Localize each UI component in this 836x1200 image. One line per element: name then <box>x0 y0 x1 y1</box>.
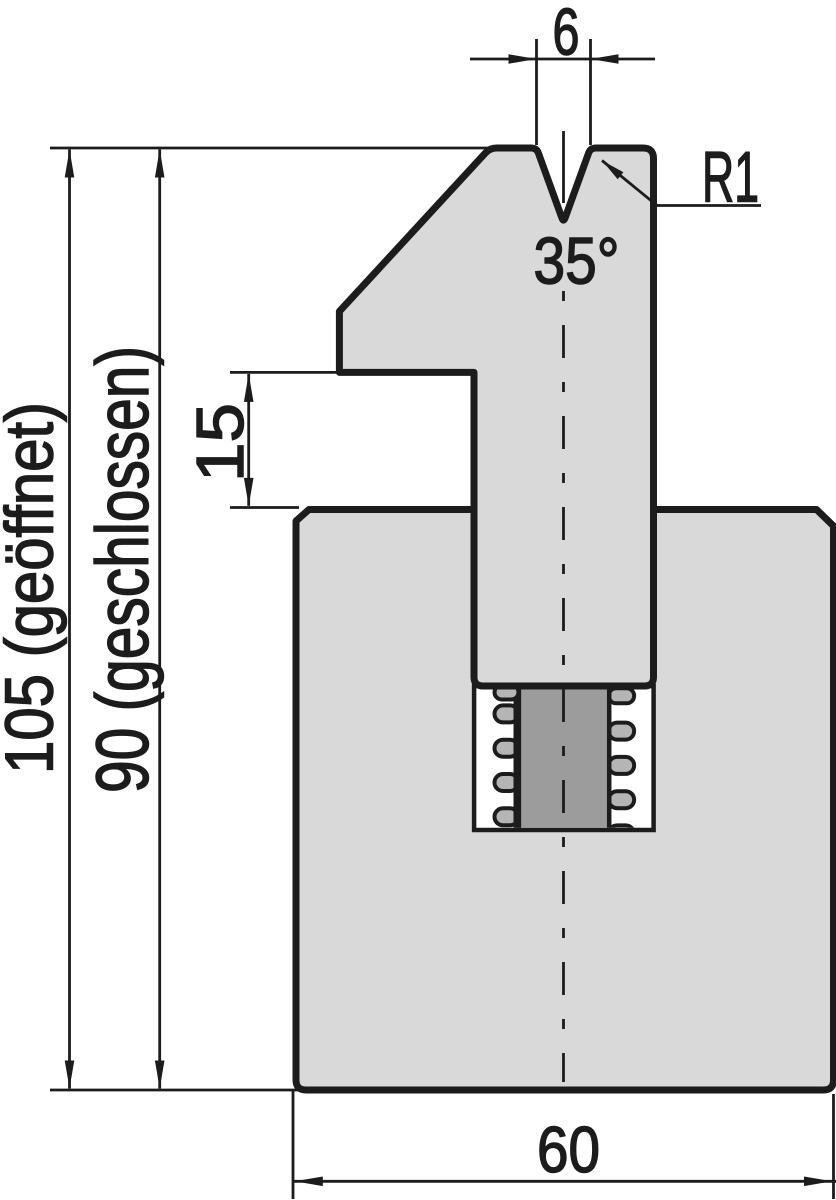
svg-text:R1: R1 <box>702 139 759 218</box>
svg-text:90 (geschlossen): 90 (geschlossen) <box>81 346 164 793</box>
svg-text:15: 15 <box>183 403 258 482</box>
svg-text:60: 60 <box>537 1113 600 1186</box>
svg-text:105 (geöffnet): 105 (geöffnet) <box>0 402 68 774</box>
svg-text:35°: 35° <box>534 224 620 298</box>
svg-text:6: 6 <box>553 0 580 69</box>
